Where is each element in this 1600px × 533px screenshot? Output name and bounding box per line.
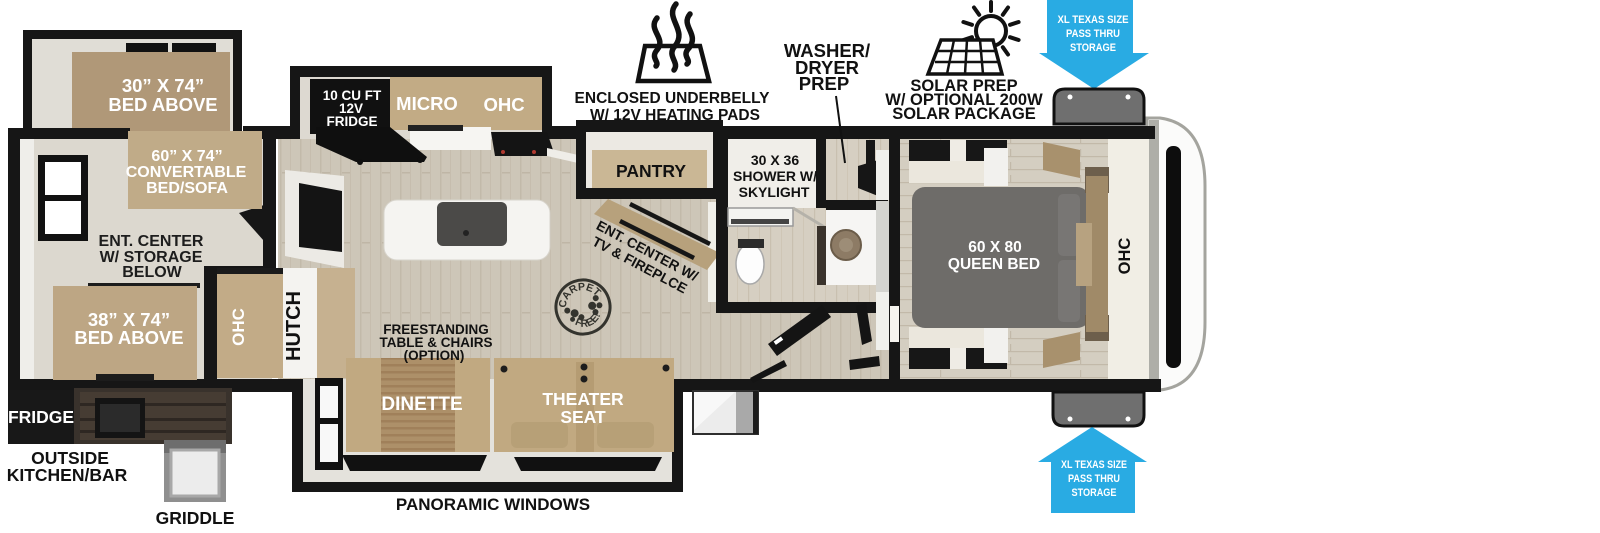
svg-text:ENT. CENTER: ENT. CENTER: [99, 233, 204, 250]
svg-text:PREP: PREP: [799, 73, 849, 94]
svg-text:PANTRY: PANTRY: [616, 161, 686, 181]
svg-text:30 X 36: 30 X 36: [751, 152, 799, 168]
svg-text:SHOWER W/: SHOWER W/: [733, 168, 817, 184]
svg-text:PASS THRU: PASS THRU: [1068, 473, 1120, 485]
svg-text:BELOW: BELOW: [122, 264, 182, 281]
svg-text:FRIDGE: FRIDGE: [8, 407, 74, 427]
svg-text:ENCLOSED UNDERBELLY: ENCLOSED UNDERBELLY: [575, 90, 771, 107]
svg-text:SEAT: SEAT: [560, 407, 606, 427]
svg-text:60 X 80: 60 X 80: [968, 239, 1021, 256]
svg-text:FRIDGE: FRIDGE: [326, 114, 377, 129]
svg-text:CONVERTABLE: CONVERTABLE: [126, 164, 247, 181]
svg-text:MICRO: MICRO: [396, 93, 458, 114]
svg-text:STORAGE: STORAGE: [1072, 487, 1117, 499]
svg-text:BED ABOVE: BED ABOVE: [74, 327, 183, 348]
svg-text:OHC: OHC: [1116, 238, 1134, 275]
svg-text:BED ABOVE: BED ABOVE: [108, 94, 217, 115]
svg-text:HUTCH: HUTCH: [283, 291, 305, 361]
svg-text:30” X 74”: 30” X 74”: [122, 75, 204, 96]
svg-text:XL TEXAS SIZE: XL TEXAS SIZE: [1058, 14, 1129, 26]
svg-text:GRIDDLE: GRIDDLE: [156, 508, 235, 528]
svg-text:OHC: OHC: [229, 308, 248, 346]
svg-text:PANORAMIC WINDOWS: PANORAMIC WINDOWS: [396, 495, 590, 514]
svg-text:60” X 74”: 60” X 74”: [151, 148, 222, 165]
svg-text:KITCHEN/BAR: KITCHEN/BAR: [7, 465, 128, 485]
svg-text:STORAGE: STORAGE: [1070, 42, 1116, 54]
svg-text:SOLAR PACKAGE: SOLAR PACKAGE: [892, 105, 1036, 123]
svg-text:QUEEN BED: QUEEN BED: [948, 256, 1040, 273]
svg-text:W/ 12V HEATING PADS: W/ 12V HEATING PADS: [590, 107, 760, 124]
svg-text:DINETTE: DINETTE: [381, 394, 462, 415]
svg-text:BED/SOFA: BED/SOFA: [146, 180, 228, 197]
svg-text:SKYLIGHT: SKYLIGHT: [739, 184, 810, 200]
svg-text:THEATER: THEATER: [542, 389, 624, 409]
svg-text:XL TEXAS SIZE: XL TEXAS SIZE: [1061, 459, 1127, 471]
svg-text:PASS THRU: PASS THRU: [1066, 28, 1120, 40]
svg-text:(OPTION): (OPTION): [404, 348, 465, 363]
svg-text:OHC: OHC: [483, 94, 524, 115]
